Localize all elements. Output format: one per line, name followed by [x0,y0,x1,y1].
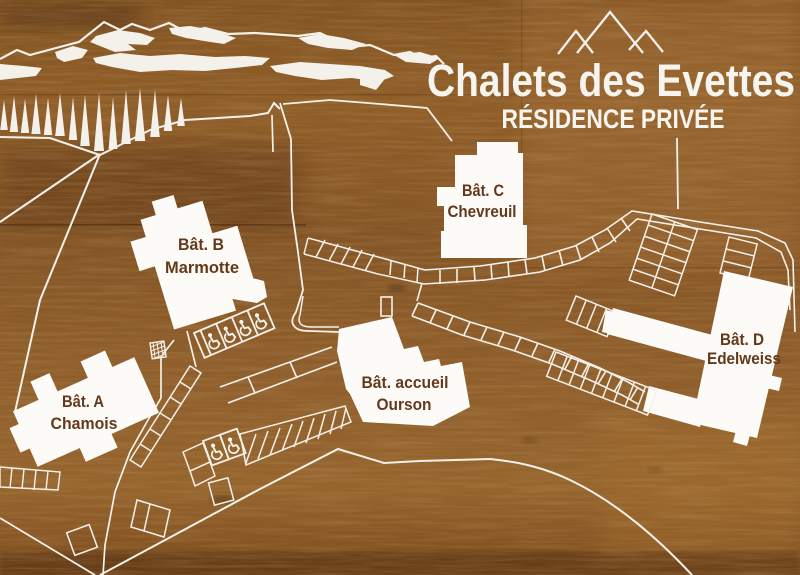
svg-text:Chamois: Chamois [51,414,118,433]
svg-text:Bât. A: Bât. A [62,392,104,411]
svg-text:Marmotte: Marmotte [165,258,239,277]
svg-text:Bât. B: Bât. B [178,235,224,254]
svg-text:Bât. C: Bât. C [462,181,504,200]
svg-text:Ourson: Ourson [377,395,432,414]
svg-text:Chevreuil: Chevreuil [448,202,517,221]
svg-text:Bât. D: Bât. D [720,330,764,349]
svg-text:Bât. accueil: Bât. accueil [362,373,449,392]
svg-text:RÉSIDENCE PRIVÉE: RÉSIDENCE PRIVÉE [502,103,725,134]
svg-text:Edelweiss: Edelweiss [707,349,781,368]
svg-text:Chalets des Evettes: Chalets des Evettes [427,55,795,106]
